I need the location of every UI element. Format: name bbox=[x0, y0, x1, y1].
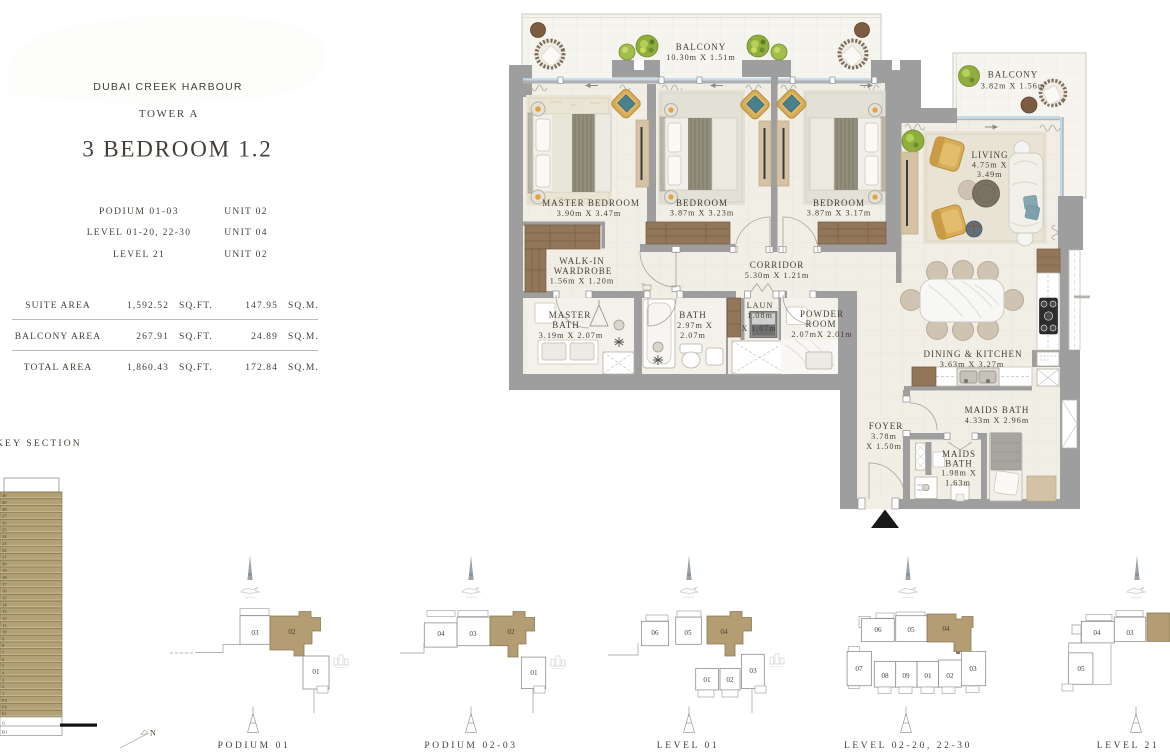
svg-text:1.56m X 1.20m: 1.56m X 1.20m bbox=[550, 277, 614, 286]
svg-text:3.87m X 3.17m: 3.87m X 3.17m bbox=[807, 209, 871, 218]
svg-text:19: 19 bbox=[2, 568, 7, 573]
svg-text:01: 01 bbox=[530, 669, 538, 677]
svg-text:SQ.M.: SQ.M. bbox=[288, 363, 319, 373]
svg-text:10: 10 bbox=[2, 630, 7, 635]
svg-text:SQ.FT.: SQ.FT. bbox=[179, 332, 213, 342]
svg-text:4.75m X: 4.75m X bbox=[972, 161, 1008, 170]
svg-text:MAIDS BATH: MAIDS BATH bbox=[965, 405, 1030, 415]
svg-text:SQ.FT.: SQ.FT. bbox=[179, 363, 213, 373]
svg-text:03: 03 bbox=[251, 629, 259, 637]
svg-text:03: 03 bbox=[469, 630, 477, 638]
svg-text:02: 02 bbox=[946, 672, 954, 680]
svg-text:06: 06 bbox=[874, 626, 882, 634]
svg-text:01: 01 bbox=[312, 668, 320, 676]
svg-text:267.91: 267.91 bbox=[136, 332, 169, 342]
svg-text:14: 14 bbox=[2, 602, 7, 607]
svg-text:P3: P3 bbox=[2, 698, 8, 703]
svg-text:CORRIDOR: CORRIDOR bbox=[750, 260, 805, 270]
svg-text:SQ.M.: SQ.M. bbox=[288, 332, 319, 342]
svg-text:07: 07 bbox=[855, 665, 863, 673]
svg-text:3.49m: 3.49m bbox=[977, 170, 1003, 179]
svg-text:UNIT 02: UNIT 02 bbox=[224, 250, 268, 260]
svg-text:1.98m X: 1.98m X bbox=[941, 469, 977, 478]
svg-text:22: 22 bbox=[2, 548, 7, 553]
svg-text:05: 05 bbox=[907, 626, 915, 634]
svg-text:4.33m X 2.96m: 4.33m X 2.96m bbox=[965, 416, 1029, 425]
svg-text:27: 27 bbox=[2, 514, 7, 519]
svg-text:2.97m X: 2.97m X bbox=[677, 321, 713, 330]
svg-text:3 BEDROOM 1.2: 3 BEDROOM 1.2 bbox=[82, 137, 272, 162]
svg-text:UNIT 04: UNIT 04 bbox=[224, 228, 268, 238]
svg-text:MASTER BEDROOM: MASTER BEDROOM bbox=[542, 198, 640, 208]
svg-text:PODIUM 01: PODIUM 01 bbox=[218, 741, 291, 751]
svg-text:LIVING: LIVING bbox=[972, 150, 1009, 160]
svg-text:17: 17 bbox=[2, 582, 7, 587]
svg-text:18: 18 bbox=[2, 575, 7, 580]
svg-text:FOYER: FOYER bbox=[869, 421, 904, 431]
svg-text:BALCONY: BALCONY bbox=[988, 70, 1039, 80]
svg-text:5.30m X 1.21m: 5.30m X 1.21m bbox=[745, 271, 809, 280]
svg-text:3.19m X 2.07m: 3.19m X 2.07m bbox=[539, 331, 603, 340]
svg-text:06: 06 bbox=[651, 629, 659, 637]
svg-text:WALK-IN: WALK-IN bbox=[559, 256, 605, 266]
svg-text:BEDROOM: BEDROOM bbox=[676, 198, 728, 208]
svg-text:21: 21 bbox=[2, 555, 7, 560]
svg-text:LAUN: LAUN bbox=[747, 301, 774, 310]
svg-text:N: N bbox=[150, 729, 156, 738]
svg-text:LEVEL 01-20, 22-30: LEVEL 01-20, 22-30 bbox=[87, 228, 192, 238]
svg-text:23: 23 bbox=[2, 541, 7, 546]
svg-text:09: 09 bbox=[902, 672, 910, 680]
svg-text:LEVEL 02-20, 22-30: LEVEL 02-20, 22-30 bbox=[844, 741, 972, 751]
svg-text:X 1.07m: X 1.07m bbox=[742, 324, 777, 333]
svg-text:1,860.43: 1,860.43 bbox=[127, 363, 169, 373]
svg-text:02: 02 bbox=[288, 628, 296, 636]
svg-text:UNIT 02: UNIT 02 bbox=[224, 207, 268, 217]
svg-text:P2: P2 bbox=[2, 705, 8, 710]
svg-text:12: 12 bbox=[2, 616, 7, 621]
svg-text:147.95: 147.95 bbox=[245, 301, 278, 311]
svg-text:13: 13 bbox=[2, 609, 7, 614]
svg-text:1.63m: 1.63m bbox=[945, 479, 971, 488]
svg-text:3.90m X 3.47m: 3.90m X 3.47m bbox=[557, 209, 621, 218]
svg-text:LEVEL 21: LEVEL 21 bbox=[113, 250, 165, 260]
svg-text:TOWER A: TOWER A bbox=[139, 108, 199, 120]
svg-text:01: 01 bbox=[703, 676, 711, 684]
svg-text:BATH: BATH bbox=[552, 320, 580, 330]
svg-text:1,592.52: 1,592.52 bbox=[127, 301, 169, 311]
svg-text:ROOM: ROOM bbox=[805, 319, 836, 329]
svg-text:04: 04 bbox=[720, 628, 728, 636]
svg-text:03: 03 bbox=[1126, 629, 1134, 637]
svg-text:10.30m X 1.51m: 10.30m X 1.51m bbox=[666, 53, 736, 62]
svg-text:2.07m: 2.07m bbox=[680, 331, 706, 340]
svg-text:24: 24 bbox=[2, 534, 7, 539]
svg-text:DINING & KITCHEN: DINING & KITCHEN bbox=[924, 349, 1023, 359]
svg-text:29: 29 bbox=[2, 500, 7, 505]
svg-text:MAIDS: MAIDS bbox=[942, 449, 976, 459]
svg-text:3.87m X 3.23m: 3.87m X 3.23m bbox=[670, 209, 734, 218]
svg-text:DUBAI CREEK HARBOUR: DUBAI CREEK HARBOUR bbox=[93, 81, 242, 93]
svg-text:POWDER: POWDER bbox=[800, 309, 844, 319]
svg-text:LEVEL 01: LEVEL 01 bbox=[657, 741, 719, 751]
svg-text:20: 20 bbox=[2, 561, 7, 566]
svg-text:02: 02 bbox=[507, 628, 515, 636]
svg-text:08: 08 bbox=[881, 672, 889, 680]
svg-text:3.78m: 3.78m bbox=[871, 432, 897, 441]
svg-text:03: 03 bbox=[969, 665, 977, 673]
svg-text:25: 25 bbox=[2, 527, 7, 532]
svg-text:SUITE AREA: SUITE AREA bbox=[25, 301, 91, 311]
svg-text:28: 28 bbox=[2, 507, 7, 512]
svg-text:BATH: BATH bbox=[945, 459, 973, 469]
svg-text:BEDROOM: BEDROOM bbox=[813, 198, 865, 208]
svg-text:2.07mX 2.01m: 2.07mX 2.01m bbox=[791, 330, 852, 339]
svg-text:04: 04 bbox=[437, 630, 445, 638]
svg-text:WARDROBE: WARDROBE bbox=[554, 266, 613, 276]
svg-text:24.89: 24.89 bbox=[251, 332, 278, 342]
svg-text:B1: B1 bbox=[2, 730, 8, 735]
svg-text:3.63m X 3.27m: 3.63m X 3.27m bbox=[940, 360, 1004, 369]
svg-text:05: 05 bbox=[1077, 665, 1085, 673]
svg-text:11: 11 bbox=[2, 623, 7, 628]
svg-text:26: 26 bbox=[2, 521, 7, 526]
svg-text:01: 01 bbox=[924, 672, 932, 680]
svg-text:3.82m X 1.56m: 3.82m X 1.56m bbox=[981, 82, 1045, 91]
svg-text:04: 04 bbox=[1093, 629, 1101, 637]
svg-text:15: 15 bbox=[2, 596, 7, 601]
svg-text:1.08m: 1.08m bbox=[747, 311, 773, 320]
svg-text:P1: P1 bbox=[2, 711, 8, 716]
svg-text:03: 03 bbox=[749, 667, 757, 675]
svg-text:02: 02 bbox=[726, 676, 734, 684]
svg-text:PODIUM 01-03: PODIUM 01-03 bbox=[99, 207, 179, 217]
svg-text:PODIUM 02-03: PODIUM 02-03 bbox=[424, 741, 517, 751]
svg-text:KEY SECTION: KEY SECTION bbox=[0, 439, 82, 449]
svg-text:X 1.50m: X 1.50m bbox=[866, 442, 902, 451]
svg-text:LEVEL 21: LEVEL 21 bbox=[1097, 741, 1159, 751]
svg-text:TOTAL AREA: TOTAL AREA bbox=[24, 363, 93, 373]
svg-text:172.84: 172.84 bbox=[245, 363, 278, 373]
svg-text:SQ.M.: SQ.M. bbox=[288, 301, 319, 311]
svg-text:SQ.FT.: SQ.FT. bbox=[179, 301, 213, 311]
svg-text:MASTER: MASTER bbox=[549, 310, 592, 320]
svg-text:04: 04 bbox=[942, 625, 950, 633]
svg-text:BALCONY: BALCONY bbox=[676, 42, 727, 52]
svg-text:16: 16 bbox=[2, 589, 7, 594]
svg-text:BATH: BATH bbox=[679, 310, 707, 320]
svg-text:30: 30 bbox=[2, 493, 7, 498]
svg-text:BALCONY AREA: BALCONY AREA bbox=[15, 332, 101, 342]
svg-text:05: 05 bbox=[684, 629, 692, 637]
